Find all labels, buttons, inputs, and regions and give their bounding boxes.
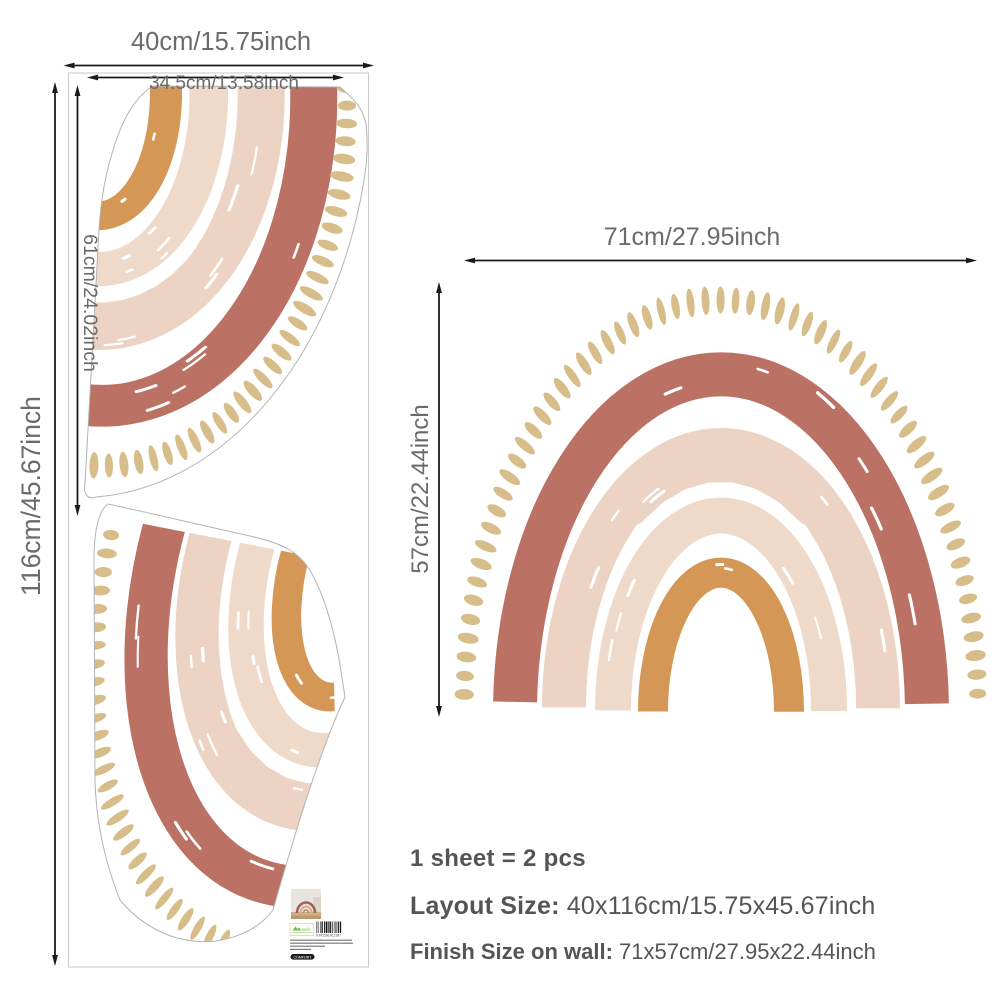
svg-text:6 972566 812397: 6 972566 812397 <box>316 933 341 937</box>
svg-text:116cm/45.67inch: 116cm/45.67inch <box>16 396 46 596</box>
svg-text:61cm/24.02inch: 61cm/24.02inch <box>79 234 101 372</box>
svg-text:Finish Size on wall: 71x57cm/2: Finish Size on wall: 71x57cm/27.95x22.44… <box>410 939 876 964</box>
svg-text:COMFORT: COMFORT <box>293 955 312 959</box>
svg-text:1 sheet = 2 pcs: 1 sheet = 2 pcs <box>410 845 586 872</box>
svg-text:Layout Size: 40x116cm/15.75x45: Layout Size: 40x116cm/15.75x45.67inch <box>410 892 876 920</box>
svg-text:71cm/27.95inch: 71cm/27.95inch <box>604 223 781 251</box>
svg-text:57cm/22.44inch: 57cm/22.44inch <box>407 404 434 573</box>
svg-text:34.5cm/13.58inch: 34.5cm/13.58inch <box>149 73 299 94</box>
svg-text:40cm/15.75inch: 40cm/15.75inch <box>131 28 311 56</box>
svg-text:oolife: oolife <box>301 927 312 932</box>
